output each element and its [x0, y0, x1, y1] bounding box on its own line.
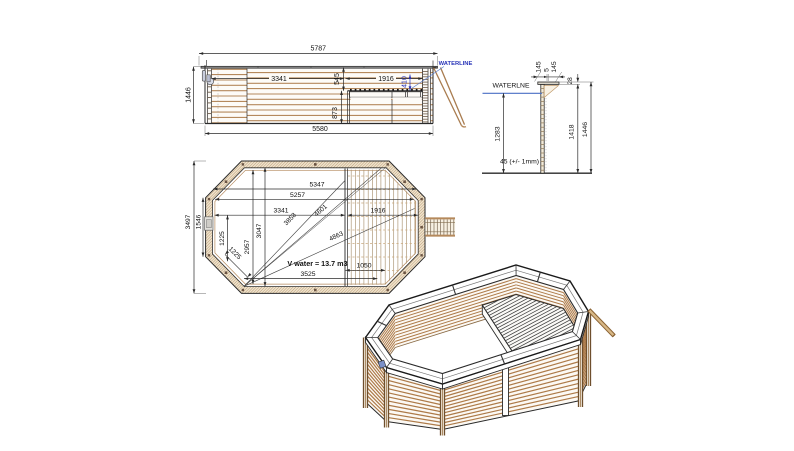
svg-text:28: 28	[567, 77, 574, 85]
svg-text:5580: 5580	[312, 126, 328, 133]
svg-text:1225: 1225	[219, 231, 226, 246]
svg-text:145: 145	[551, 61, 558, 73]
svg-text:WATERLINE: WATERLINE	[439, 61, 473, 67]
svg-text:1283: 1283	[495, 126, 502, 141]
svg-text:1546: 1546	[195, 214, 202, 229]
svg-text:V water = 13.7 m3: V water = 13.7 m3	[287, 259, 347, 268]
svg-text:2957: 2957	[244, 239, 251, 254]
svg-text:545: 545	[334, 73, 341, 85]
svg-text:3341: 3341	[273, 208, 288, 215]
svg-text:1446: 1446	[186, 87, 193, 103]
svg-text:1916: 1916	[370, 208, 385, 215]
svg-text:5347: 5347	[309, 182, 324, 189]
svg-text:1050: 1050	[356, 263, 371, 270]
svg-text:3525: 3525	[300, 271, 315, 278]
svg-text:5: 5	[543, 68, 550, 72]
svg-text:873: 873	[332, 107, 339, 119]
svg-text:1446: 1446	[582, 122, 589, 137]
svg-text:5787: 5787	[311, 46, 327, 53]
svg-text:3047: 3047	[256, 223, 263, 238]
svg-text:3341: 3341	[271, 76, 287, 83]
svg-text:1418: 1418	[569, 124, 576, 139]
svg-text:145: 145	[536, 61, 543, 73]
svg-text:45 (+/- 1mm): 45 (+/- 1mm)	[500, 159, 539, 166]
svg-text:3497: 3497	[185, 214, 192, 229]
svg-text:410: 410	[402, 76, 409, 88]
svg-text:1916: 1916	[378, 76, 394, 83]
svg-text:5257: 5257	[290, 192, 305, 199]
svg-text:WATERLNE: WATERLNE	[492, 83, 529, 90]
